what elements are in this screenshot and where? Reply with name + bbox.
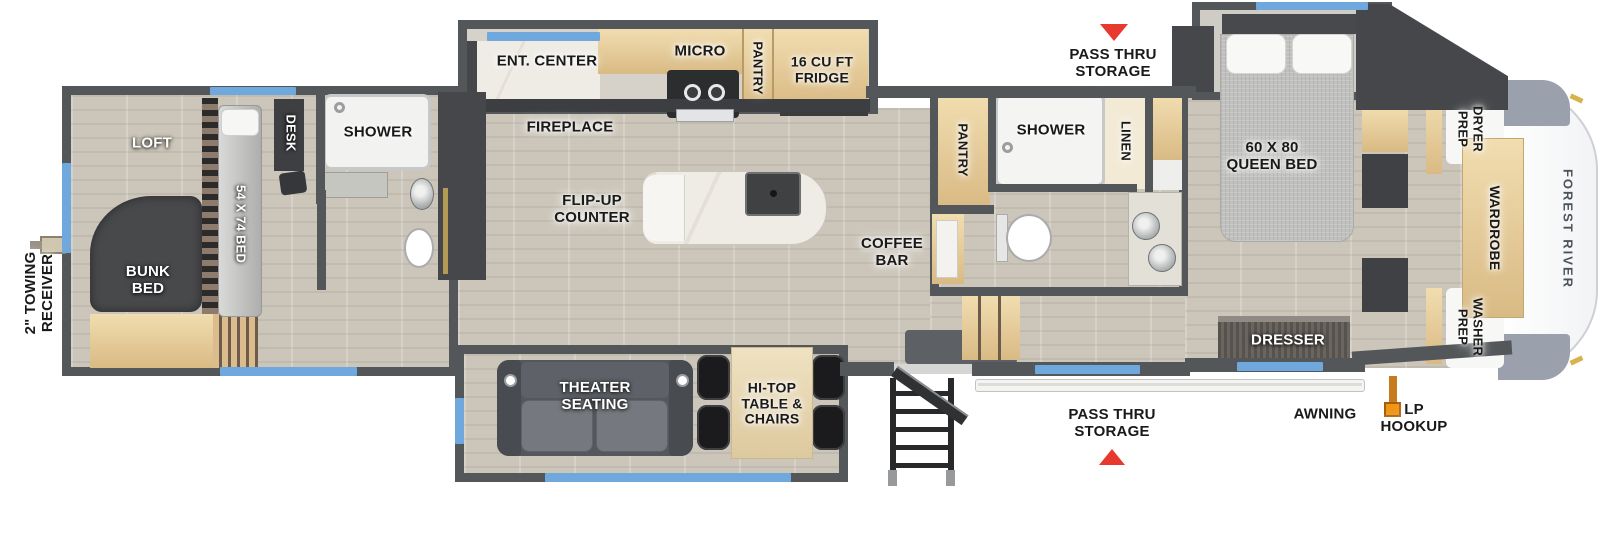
flip-up-extension	[643, 175, 685, 241]
flip-up-counter-label: FLIP-UP COUNTER	[554, 193, 630, 227]
nightstand	[1362, 154, 1408, 208]
pantry-bath-label: PANTRY	[955, 123, 970, 176]
theater-slide-window-bottom	[545, 473, 791, 482]
fireplace-unit	[466, 99, 870, 112]
headboard	[1222, 14, 1370, 34]
rear-top-window	[210, 87, 296, 95]
loft-label: LOFT	[132, 136, 172, 153]
vanity-sink	[1132, 212, 1160, 240]
awning-label: AWNING	[1294, 407, 1357, 424]
desk-label: DESK	[283, 115, 298, 152]
marker-light-icon	[1570, 93, 1584, 103]
loft-ladder	[202, 98, 218, 316]
bedside-cabinet-tan	[1362, 108, 1408, 152]
bunk-steps	[90, 314, 213, 368]
rear-shower-label: SHOWER	[344, 125, 413, 142]
marker-light-icon	[1570, 355, 1584, 365]
dryer-prep-label: DRYER PREP	[1455, 106, 1484, 152]
brand-logo: FOREST RIVER	[1560, 169, 1575, 289]
pillow	[1292, 34, 1352, 74]
towing-receiver-label: 2" TOWING RECEIVER	[23, 252, 57, 335]
coffee-bar-label: COFFEE BAR	[861, 236, 923, 270]
ent-center-label: ENT. CENTER	[497, 54, 598, 71]
cupholder-icon	[504, 374, 517, 387]
rear-bottom-window	[220, 367, 357, 376]
bed-slide-window	[1256, 2, 1368, 10]
queen-bed-label: 60 X 80 QUEEN BED	[1227, 140, 1318, 174]
ent-center-counter	[467, 41, 600, 106]
linen-right-wall	[1145, 94, 1153, 192]
rear-shower-head-icon	[334, 102, 345, 113]
shower-left-wall	[988, 94, 996, 192]
mid-shower-label: SHOWER	[1017, 123, 1086, 140]
theater-slide-window-left	[455, 398, 464, 444]
vanity-counter	[1128, 192, 1182, 286]
coffee-bar-counter	[936, 220, 958, 278]
dresser-label: DRESSER	[1251, 333, 1325, 350]
bottom-wall-a	[840, 362, 894, 376]
hitch-stub	[30, 241, 42, 249]
toilet	[1006, 214, 1052, 262]
micro-label: MICRO	[675, 44, 726, 61]
bedroom-step-seam	[978, 296, 981, 360]
bedside-closet-base	[1152, 160, 1182, 190]
oven-front	[676, 109, 734, 122]
cupholder-icon	[676, 374, 689, 387]
step-foot	[946, 470, 955, 486]
rear-bath-halfwall	[317, 190, 326, 290]
faucet-icon	[770, 190, 777, 197]
burner-icon	[684, 84, 701, 101]
front-bottom-window	[1237, 362, 1323, 371]
theater-seating-label: THEATER SEATING	[559, 380, 630, 414]
linen-label: LINEN	[1118, 121, 1133, 161]
pillow	[1226, 34, 1286, 74]
pass-thru-top-label: PASS THRU STORAGE	[1069, 47, 1156, 81]
arrow-up-icon	[1099, 449, 1125, 465]
bunk-steps-slats	[213, 314, 258, 368]
lp-hookup-label: LP HOOKUP	[1380, 402, 1447, 436]
awning-bar-line	[978, 383, 1362, 386]
corridor-window	[1035, 365, 1140, 374]
hitop-chair	[812, 405, 845, 450]
bedroom-front-cabinet	[1356, 4, 1508, 110]
nose-cap-corner-top	[1498, 80, 1570, 126]
pass-thru-bottom-label: PASS THRU STORAGE	[1068, 407, 1155, 441]
wardrobe-label: WARDROBE	[1486, 186, 1502, 271]
floorplan-canvas: LOFT BUNK BED 54 X 74 BED DESK SHOWER EN…	[0, 0, 1600, 559]
rear-left-window	[62, 163, 71, 253]
fridge-label: 16 CU FT FRIDGE	[791, 54, 853, 85]
vanity-sink	[1148, 244, 1176, 272]
hitop-chair	[697, 405, 730, 450]
nightstand	[1362, 258, 1408, 312]
burner-icon	[708, 84, 725, 101]
bath-mid-wall	[995, 184, 1137, 192]
bedroom-steps	[962, 296, 1020, 360]
pocket-door	[443, 188, 448, 274]
rear-bed-label: 54 X 74 BED	[233, 185, 248, 263]
mid-shower	[995, 93, 1105, 187]
bedroom-step-seam	[998, 296, 1001, 360]
kitchen-slide-window	[487, 32, 600, 41]
hitop-label: HI-TOP TABLE & CHAIRS	[741, 380, 802, 427]
arrow-down-icon	[1100, 24, 1128, 41]
bedside-closet	[1152, 96, 1182, 160]
pantry-kitchen-label: PANTRY	[750, 41, 765, 94]
fireplace-label: FIREPLACE	[527, 120, 614, 137]
rear-toilet	[404, 228, 434, 268]
step-foot	[888, 470, 897, 486]
rear-bath-wall	[316, 92, 325, 204]
hitop-chair	[697, 355, 730, 400]
rear-sink	[410, 178, 434, 210]
mid-shower-head-icon	[1002, 142, 1013, 153]
rear-vanity	[318, 172, 388, 198]
bunk-bed-label: BUNK BED	[126, 264, 170, 298]
rear-bed-pillow	[221, 109, 259, 136]
desk-chair	[279, 170, 308, 195]
bath-divider-wall	[938, 205, 994, 214]
washer-prep-label: WASHER PREP	[1455, 298, 1484, 356]
bedroom-cabinet-left	[1172, 26, 1214, 92]
